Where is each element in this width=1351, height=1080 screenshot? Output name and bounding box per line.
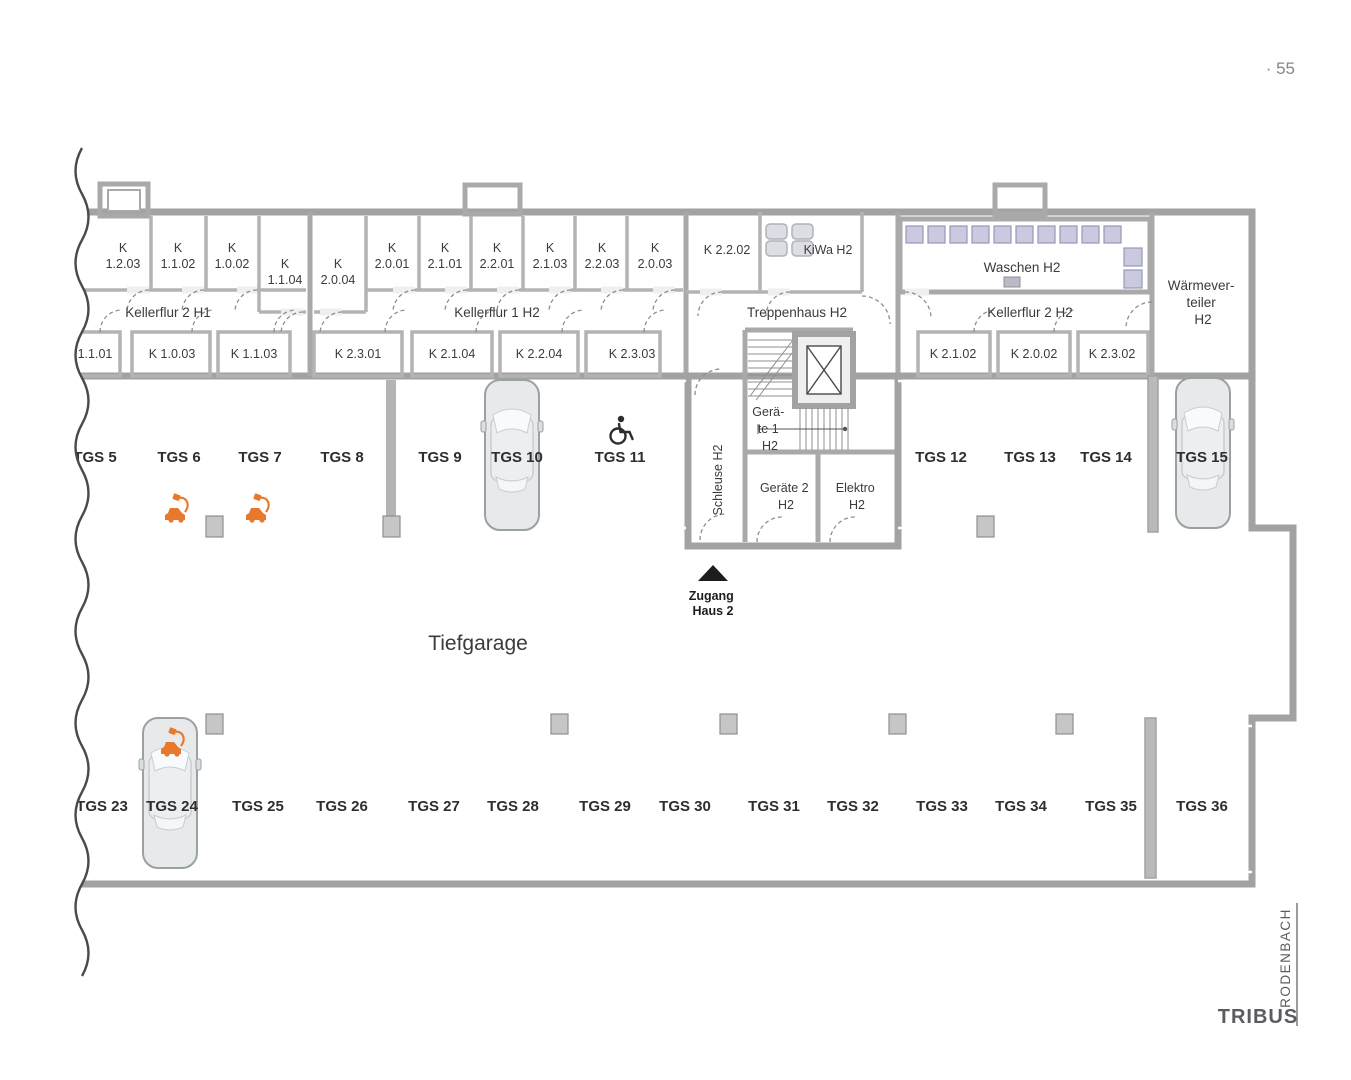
entrance-triangle-icon [698,565,728,581]
garage-title: Tiefgarage [428,632,528,655]
parking-spot-label: TGS 7 [238,449,281,466]
elevator-shaft [795,334,853,406]
break-line [0,148,89,976]
keller-label: K 1.1.03 [231,347,278,361]
brand-block: RODENBACH TRIBUS [1218,903,1298,1028]
ev-charging-icon [246,493,269,522]
light-shaft-left [100,184,148,216]
parking-spot-label: TGS 34 [995,798,1047,815]
parking-spot-label: TGS 36 [1176,798,1228,815]
parking-spot-label: TGS 27 [408,798,460,815]
keller-label: K 2.1.04 [429,347,476,361]
door-swings [100,290,1152,542]
parking-spot-label: TGS 24 [146,798,198,815]
keller-label: K1.1.02 [161,241,196,271]
keller-label: K1.1.04 [268,257,303,287]
entrance-marker: Zugang Haus 2 [689,565,738,618]
keller-label: K2.0.01 [375,241,410,271]
corridor-label-middle: Kellerflur 1 H2 [454,305,540,320]
stair-flight-upper [748,340,799,400]
room-label-geraete2: Geräte 2 H2 [760,481,812,512]
room-label-schleuse: Schleuse H2 [711,445,725,516]
parking-spot-label: TGS 8 [320,449,363,466]
keller-label: 1.1.01 [78,347,113,361]
keller-label: K 2.3.01 [335,347,382,361]
parking-spot-label: TGS 31 [748,798,800,815]
wheelchair-icon [611,416,633,444]
parking-spot-label: TGS 12 [915,449,967,466]
keller-label: K 2.3.02 [1089,347,1136,361]
brand-name: TRIBUS [1218,1006,1298,1028]
parking-spot-label: TGS 10 [491,449,543,466]
parking-spot-label: TGS 13 [1004,449,1056,466]
stairwell-label: Treppenhaus H2 [747,305,847,320]
keller-label: K2.1.01 [428,241,463,271]
corridor-label-right: Kellerflur 2 H2 [987,305,1073,320]
parking-spot-label: TGS 6 [157,449,200,466]
keller-label: K 2.2.04 [516,347,563,361]
keller-label: K1.2.03 [106,241,141,271]
corridor-label-left: Kellerflur 2 H1 [125,305,211,320]
parking-spot-label: TGS 25 [232,798,284,815]
parking-spot-label: TGS 14 [1080,449,1132,466]
washing-machines [906,226,1142,288]
ev-charging-icon [165,493,188,522]
keller-label: K 1.0.03 [149,347,196,361]
parking-spot-label: TGS 9 [418,449,461,466]
page-number: · 55 [1266,59,1295,78]
parking-spot-label: TGS 35 [1085,798,1137,815]
parking-spot-label: TGS 33 [916,798,968,815]
keller-label: K 2.3.03 [609,347,656,361]
parking-spot-label: TGS 28 [487,798,539,815]
underground-garage-plan: Zugang Haus 2 Kellerflur 2 H1 Kellerflur… [0,0,1351,1080]
room-label-elektro: Elektro H2 [836,481,878,512]
parking-spot-label: TGS 23 [76,798,128,815]
keller-label: K1.0.02 [215,241,250,271]
room-label-waschen: Waschen H2 [984,260,1061,275]
parking-spot-label: TGS 32 [827,798,879,815]
keller-label: K2.0.03 [638,241,673,271]
parking-spot-label: TGS 29 [579,798,631,815]
keller-label: K2.2.03 [585,241,620,271]
parking-spot-label: TGS 15 [1176,449,1228,466]
room-label-kiwa: KiWa H2 [804,243,853,257]
stroller-icon [766,224,787,256]
parked-car-tgs24 [139,718,201,868]
floor-plan-page: Zugang Haus 2 Kellerflur 2 H1 Kellerflur… [0,0,1351,1080]
parking-spot-label: TGS 26 [316,798,368,815]
sink-icon [1004,277,1020,287]
parking-spot-label: TGS 30 [659,798,711,815]
keller-label: K 2.0.02 [1011,347,1058,361]
parking-spot-label: TGS 11 [595,449,646,466]
brand-location: RODENBACH [1278,908,1293,1008]
keller-label: K 2.1.02 [930,347,977,361]
keller-label: K2.1.03 [533,241,568,271]
keller-label: K2.2.01 [480,241,515,271]
keller-label: K2.0.04 [321,257,356,287]
room-label-waermeverteiler: Wärmever- teiler H2 [1168,278,1239,327]
room-label-k2202: K 2.2.02 [704,243,751,257]
entrance-label: Zugang Haus 2 [689,589,738,618]
